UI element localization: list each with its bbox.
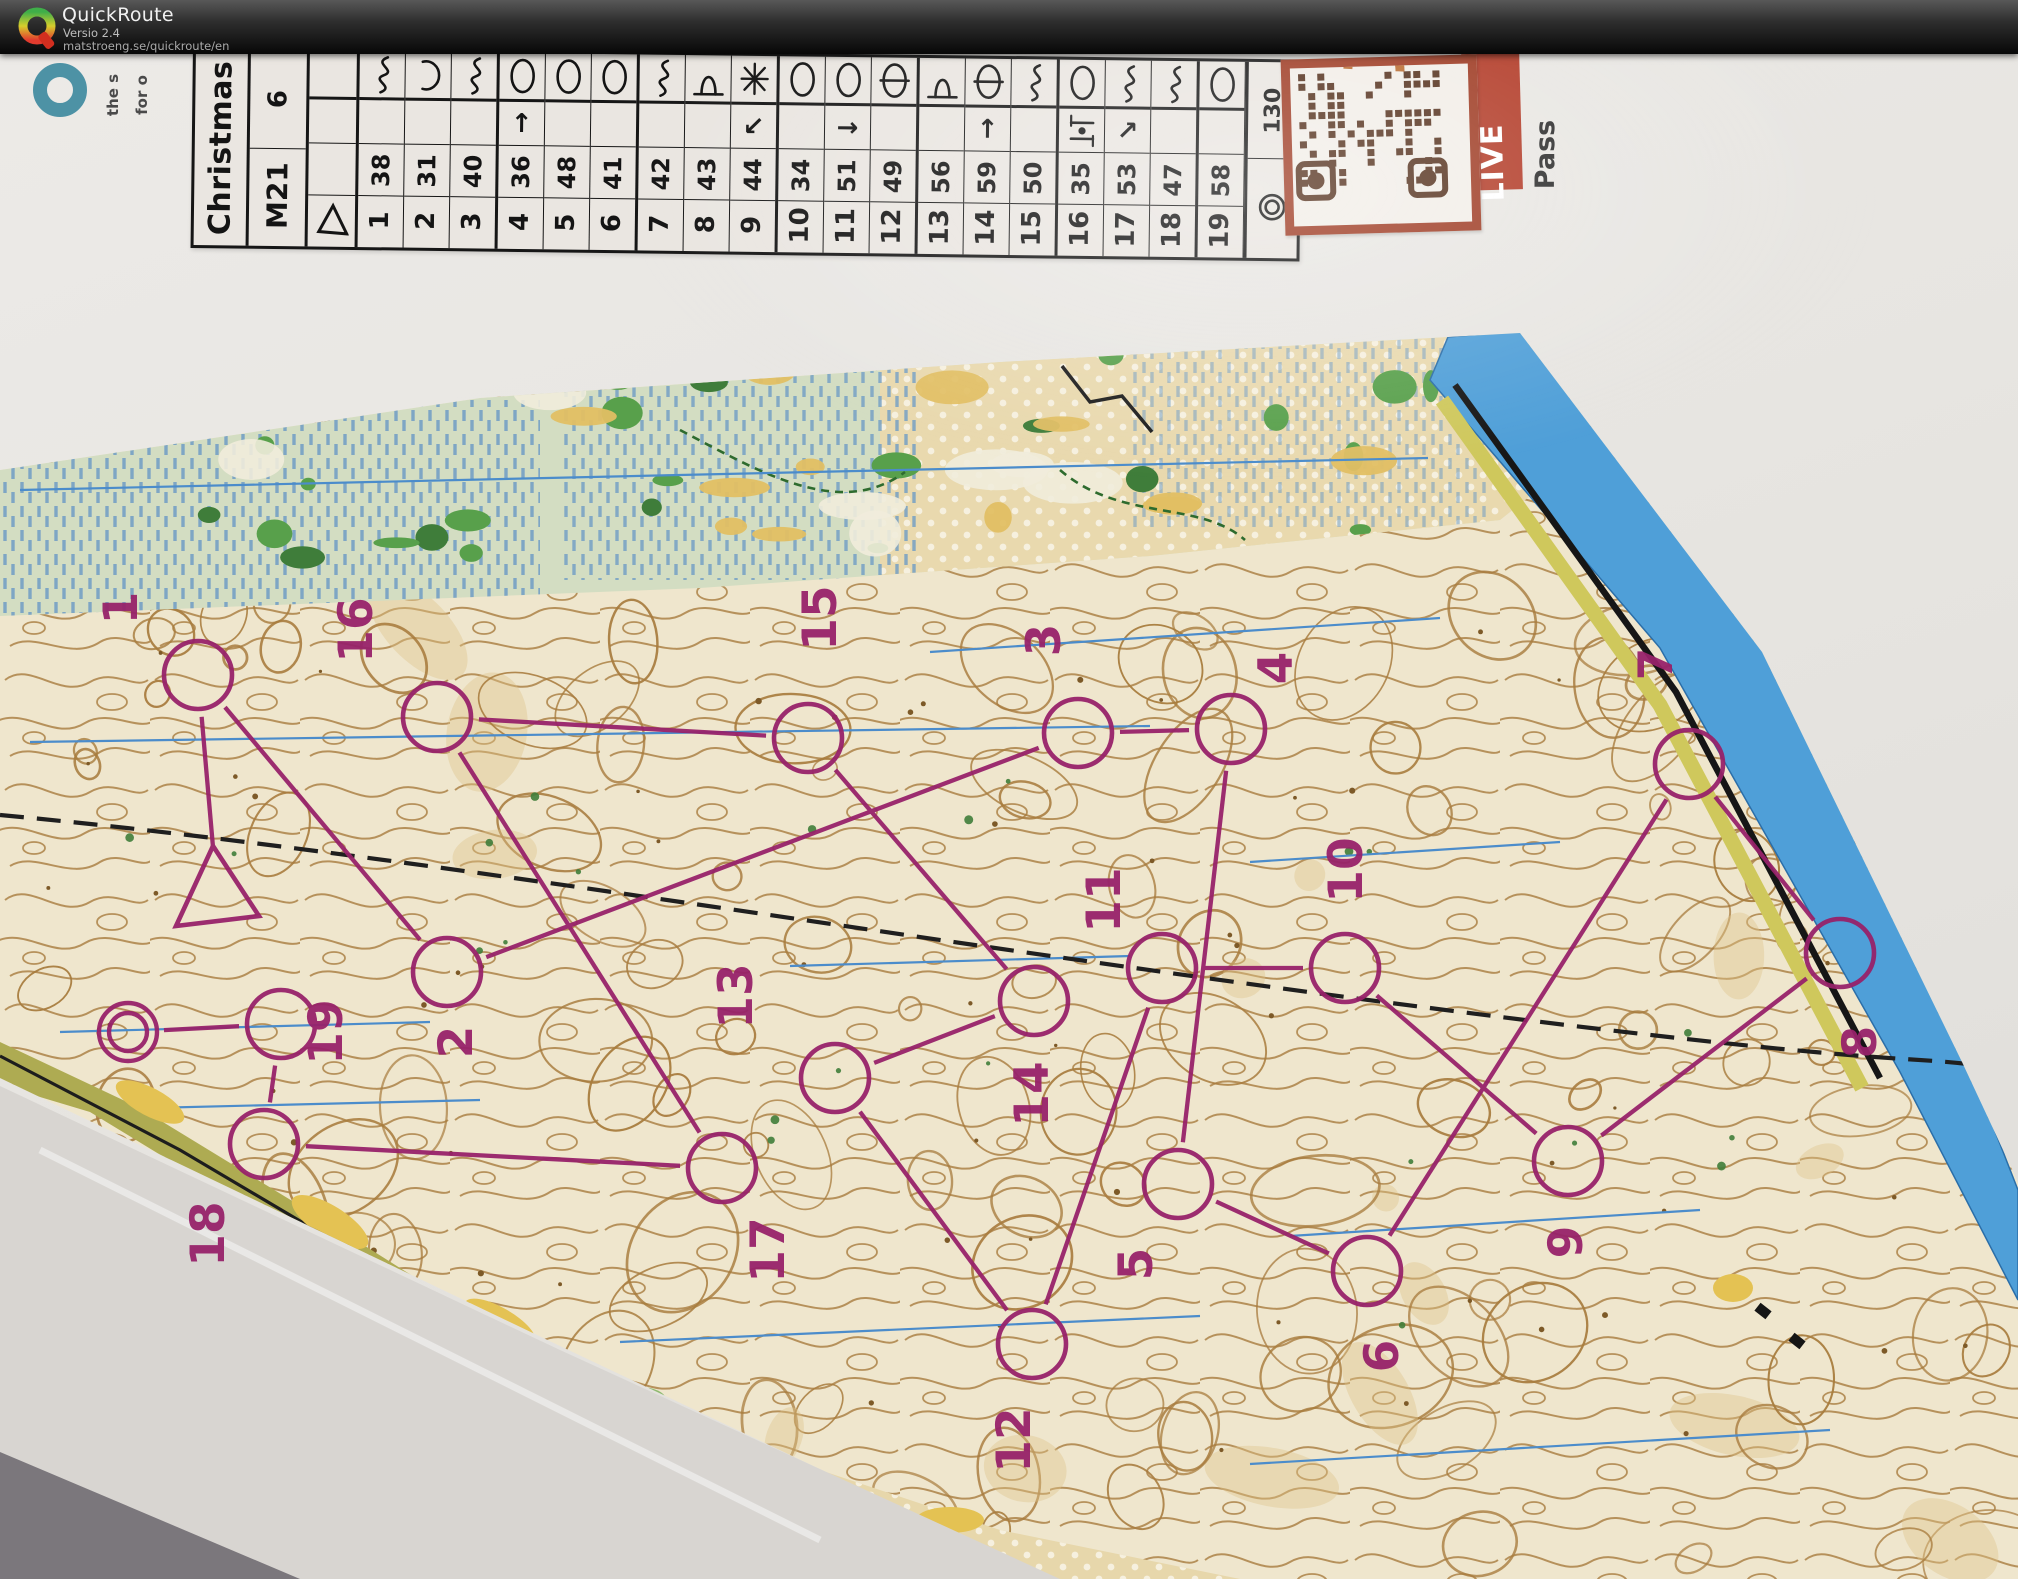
quickroute-logo-icon (16, 5, 62, 53)
leg-line-3 (1120, 730, 1189, 732)
control-code: 50 (1019, 161, 1047, 195)
app-website: matstroeng.se/quickroute/en (63, 39, 229, 53)
control-number: 14 (971, 209, 1001, 246)
card-control-column-19: 5819 (1197, 61, 1245, 258)
control-code: 53 (1113, 162, 1141, 196)
control-number-13: 13 (709, 963, 764, 1028)
quickroute-window: 12345678910111213141516171819 the s for … (0, 0, 2018, 1579)
control-number-18: 18 (181, 1201, 236, 1266)
control-number: 5 (551, 213, 581, 231)
control-description-card: Christmas6M21381312403↑364485416427438↙4… (191, 46, 1302, 262)
card-control-column-4: ↑364 (498, 53, 546, 250)
control-number: 2 (411, 211, 441, 229)
control-number-17: 17 (741, 1217, 796, 1282)
card-control-column-1: 381 (358, 51, 406, 248)
control-code: 38 (367, 153, 395, 187)
control-number-15: 15 (793, 585, 848, 650)
card-control-column-17: ↗5317 (1104, 60, 1152, 257)
control-code: 43 (693, 157, 721, 191)
control-number-10: 10 (1319, 837, 1374, 902)
card-control-column-14: ↑5914 (964, 58, 1012, 255)
detail-arrow-icon: ↑ (976, 116, 998, 142)
control-number-9: 9 (1539, 1226, 1594, 1259)
card-control-column-7: 427 (638, 54, 686, 251)
control-code: 47 (1159, 163, 1187, 197)
control-code: 51 (833, 159, 861, 193)
card-control-column-18: 4718 (1149, 61, 1199, 258)
card-control-column-2: 312 (404, 52, 452, 249)
control-code: 58 (1207, 163, 1235, 197)
card-control-column-10: 3410 (778, 56, 826, 253)
control-number-6: 6 (1355, 1340, 1410, 1373)
control-code: 48 (553, 155, 581, 189)
detail-arrow-icon: ↙ (742, 113, 764, 139)
control-number-16: 16 (329, 597, 384, 662)
control-code: 34 (787, 158, 815, 192)
control-number: 16 (1065, 210, 1095, 247)
control-code: 44 (739, 157, 767, 191)
app-header: QuickRoute Versio 2.4 matstroeng.se/quic… (0, 0, 2018, 54)
detail-arrow-icon: ↑ (511, 110, 533, 136)
card-control-column-3: 403 (450, 52, 500, 249)
control-number-14: 14 (1005, 1061, 1060, 1126)
control-number: 18 (1157, 211, 1187, 248)
app-title: QuickRoute (62, 4, 174, 26)
qr-code (1281, 54, 1482, 235)
control-number: 12 (877, 208, 907, 245)
control-number-4: 4 (1249, 652, 1304, 685)
control-code: 41 (599, 156, 627, 190)
card-control-column-6: 416 (590, 54, 640, 251)
card-start-column (308, 50, 360, 247)
control-code: 36 (507, 155, 535, 189)
card-title-column: Christmas (194, 49, 251, 246)
card-control-column-15: 5015 (1010, 59, 1060, 256)
control-number: 3 (457, 212, 487, 230)
sponsor-text-line2: for o (133, 75, 151, 115)
control-number: 19 (1205, 212, 1235, 249)
control-code: 35 (1067, 161, 1095, 195)
control-code: 40 (459, 154, 487, 188)
control-number-5: 5 (1109, 1248, 1164, 1281)
control-number: 13 (925, 208, 955, 245)
detail-arrow-icon: → (836, 114, 858, 140)
control-number-2: 2 (429, 1026, 484, 1059)
control-code: 56 (927, 160, 955, 194)
pass-text: Pass (1524, 60, 1568, 170)
control-number-19: 19 (299, 999, 354, 1064)
control-number-7: 7 (1629, 648, 1684, 681)
control-number: 15 (1017, 209, 1047, 246)
control-number-11: 11 (1077, 867, 1132, 932)
control-number-1: 1 (94, 592, 149, 625)
control-number: 17 (1111, 211, 1141, 248)
course-class: M21 (260, 162, 294, 229)
control-number-3: 3 (1017, 624, 1072, 657)
control-number: 11 (831, 207, 861, 244)
qr-pattern-icon (1290, 64, 1454, 208)
card-control-column-5: 485 (544, 53, 592, 250)
control-number-12: 12 (987, 1407, 1042, 1472)
control-code: 31 (413, 153, 441, 187)
control-number: 7 (645, 214, 675, 232)
card-control-column-11: →5111 (824, 57, 872, 254)
control-number: 6 (597, 213, 627, 231)
control-number: 9 (737, 215, 767, 233)
control-number: 8 (691, 215, 721, 233)
card-class-column: 6M21 (249, 50, 310, 247)
control-code: 42 (647, 156, 675, 190)
control-code: 59 (973, 160, 1001, 194)
app-version: Versio 2.4 (63, 26, 120, 40)
sponsor-text-line1: the s (104, 74, 122, 116)
control-number: 4 (505, 212, 535, 230)
control-number: 1 (365, 211, 395, 229)
course-length: 6 (263, 90, 293, 108)
detail-arrow-icon: ↗ (1116, 118, 1138, 144)
event-title: Christmas (202, 60, 239, 235)
control-code: 49 (879, 159, 907, 193)
control-number: 10 (785, 207, 815, 244)
sponsor-logo: the s for o (30, 56, 210, 236)
card-control-column-16: 3516 (1058, 60, 1106, 257)
control-number-8: 8 (1833, 1026, 1888, 1059)
card-control-column-8: 438 (684, 55, 732, 252)
card-control-column-13: 5613 (918, 58, 966, 255)
ring-logo-icon (30, 56, 94, 120)
card-control-column-12: 4912 (870, 57, 920, 254)
card-control-column-9: ↙449 (730, 56, 780, 253)
